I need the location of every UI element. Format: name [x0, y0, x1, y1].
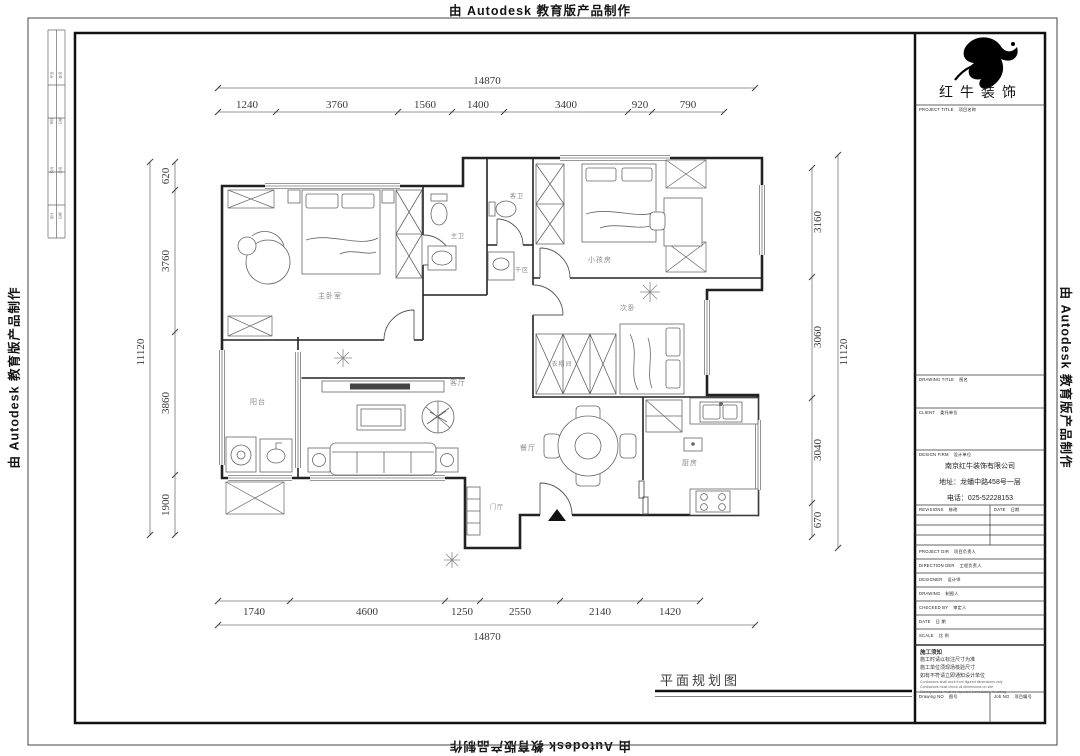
field-label-cn: 项目名称 [959, 107, 977, 112]
field-label-cn: 日 期 [936, 619, 946, 624]
room-guest-bath [489, 201, 516, 217]
field-project-dir: PROJECT DIR项目负责人 [919, 549, 976, 555]
sign-strip-label: 姓名 [58, 72, 63, 79]
door-master [384, 310, 414, 340]
door-entry [540, 483, 572, 515]
toilet [431, 203, 447, 225]
sign-strip-label: 专业 [49, 71, 54, 78]
field-label-en: DRAWING [919, 591, 940, 596]
field-drawing-title: DRAWING TITLE图名 [919, 377, 968, 383]
dim-top-seg: 3760 [326, 99, 349, 111]
dim-right-total: 11120 [838, 338, 850, 365]
sign-strip-label: 签名 [58, 167, 63, 174]
ceiling-light [640, 282, 660, 302]
field-job-no: Job NO项目编号 [994, 694, 1032, 700]
wardrobe [536, 334, 616, 394]
dim-left-seg: 620 [160, 167, 172, 184]
room-label-kids: 小孩房 [588, 255, 612, 264]
room-label-dry-area: 干区 [515, 267, 529, 274]
area-dry-vanity [488, 252, 514, 280]
dim-bottom-seg: 1250 [451, 606, 474, 618]
field-drawing-by: DRAWING制图人 [919, 591, 959, 597]
dim-bottom-total: 14870 [473, 631, 501, 643]
field-label-en: DRAWING TITLE [919, 377, 954, 382]
field-label-en: REVISIONS [919, 507, 944, 512]
field-label-cn: 图名 [959, 377, 968, 382]
tv [350, 384, 410, 390]
note-line: 如有不符请立即通知设计单位 [920, 672, 985, 679]
field-label-en: SCALE [919, 633, 934, 638]
sign-strip-label: 校对 [49, 166, 54, 173]
toilet-tank [431, 194, 447, 201]
toilet [496, 201, 516, 217]
dim-left-seg: 3760 [160, 250, 172, 273]
dim-right-seg: 3040 [812, 439, 824, 462]
field-label-cn: 审定人 [953, 605, 966, 610]
firm-name: 南京红牛装饰有限公司 [917, 461, 1043, 471]
field-label-cn: 项目编号 [1014, 694, 1032, 699]
room-label-master-bath: 主卫 [451, 232, 465, 240]
dining-chair [544, 434, 560, 458]
sign-strip-label: 审核 [49, 117, 54, 124]
sign-strip-label: 设计 [49, 212, 54, 219]
logo-text: 红牛装饰 [919, 82, 1043, 102]
floor-plan-drawing: 专业 姓名 审核 日期 校对 签名 设计 日期 14870 1240 3760 … [0, 0, 1080, 756]
room-living [308, 349, 458, 475]
dimension-text-bottom: 1740 4600 1250 2550 2140 1420 14870 [243, 606, 682, 643]
wash-basin [493, 258, 509, 270]
field-label-cn: 比 例 [939, 633, 949, 638]
field-revisions: REVISIONS修改 [919, 507, 957, 513]
room-foyer [444, 487, 480, 568]
desk [664, 198, 702, 246]
room-kitchen [646, 398, 758, 515]
room-master-bath [428, 194, 456, 270]
field-label-en: Drawing NO [919, 694, 944, 699]
field-date-col: DATE日期 [994, 507, 1019, 513]
field-label-cn: 项目负责人 [954, 549, 976, 554]
field-label-cn: 委托单位 [940, 410, 958, 415]
field-date-row: DATE日 期 [919, 619, 946, 625]
notes-title: 施工须知 [920, 648, 942, 656]
note-line: 施工单位须现场核验尺寸 [920, 664, 975, 671]
dim-right-seg: 3160 [812, 211, 824, 234]
field-label-en: DATE [994, 507, 1006, 512]
dim-top-seg: 3400 [555, 99, 578, 111]
dim-bottom-seg: 1420 [659, 606, 682, 618]
dimension-text-right: 3160 3060 3040 670 11120 [812, 211, 850, 529]
dim-left-total: 11120 [135, 338, 147, 365]
field-label-en: PROJECT DIR [919, 549, 949, 554]
dimension-text-top: 14870 1240 3760 1560 1400 3400 920 790 [236, 75, 697, 111]
field-designer: DESIGNER设计师 [919, 577, 961, 583]
field-design-firm: DESIGN FIRM设计单位 [919, 452, 971, 458]
door-guest-bath [497, 219, 523, 245]
nightstand [288, 190, 300, 203]
dining-chair [620, 434, 636, 458]
room-label-closet: 衣帽间 [551, 360, 572, 368]
dimension-lines [147, 85, 841, 628]
sign-strip [48, 30, 65, 238]
field-client: CLIENT委托单位 [919, 410, 958, 416]
field-label-cn: 图号 [949, 694, 958, 699]
room-label-balcony: 阳台 [250, 397, 266, 406]
nightstand [382, 190, 394, 203]
sign-strip-label: 日期 [58, 117, 63, 124]
outdoor-light [444, 552, 460, 568]
dim-left-seg: 1900 [160, 494, 172, 517]
field-label-en: DIRECTION DER [919, 563, 955, 568]
room-label-foyer: 门厅 [490, 503, 504, 511]
cad-sheet: 由 Autodesk 教育版产品制作 由 Autodesk 教育版产品制作 由 … [0, 0, 1080, 756]
field-drawing-no: Drawing NO图号 [919, 694, 958, 700]
field-label-cn: 修改 [949, 507, 958, 512]
dim-bottom-seg: 2140 [589, 606, 612, 618]
field-label-en: CLIENT [919, 410, 935, 415]
room-label-kitchen: 厨房 [682, 458, 698, 467]
note-line-en: Contractors shall work from figured dime… [920, 680, 1003, 684]
dim-right-seg: 3060 [812, 326, 824, 349]
field-label-cn: 设计单位 [954, 452, 972, 457]
field-scale: SCALE比 例 [919, 633, 949, 639]
drawing-tab: 平面规划图 [655, 673, 912, 697]
dim-top-total: 14870 [473, 75, 501, 87]
field-label-cn: 制图人 [945, 591, 958, 596]
room-label-master-bedroom: 主卧室 [318, 291, 342, 300]
note-line-en: Contractors must check all dimensions on… [920, 685, 993, 689]
room-dining [544, 406, 636, 486]
wash-basin [432, 251, 452, 265]
sign-strip-label: 日期 [58, 212, 63, 219]
dim-bottom-seg: 4600 [356, 606, 379, 618]
note-line: 施工时请以标注尺寸为准 [920, 656, 975, 663]
field-label-cn: 日期 [1011, 507, 1020, 512]
dim-bottom-seg: 2550 [509, 606, 532, 618]
dim-top-seg: 790 [680, 99, 697, 111]
dim-top-seg: 1400 [467, 99, 490, 111]
dimension-text-left: 11120 620 3760 3860 1900 [135, 167, 172, 516]
dim-left-seg: 3860 [160, 392, 172, 415]
room-label-guest-bath: 客卫 [510, 192, 524, 200]
field-label-en: DESIGN FIRM [919, 452, 949, 457]
ceiling-light [334, 349, 352, 367]
toilet-tank [489, 202, 495, 216]
chair [650, 212, 665, 230]
field-label-en: Job NO [994, 694, 1009, 699]
room-label-second-bedroom: 次卧 [620, 303, 636, 312]
dim-top-seg: 1240 [236, 99, 259, 111]
field-label-en: DATE [919, 619, 931, 624]
field-project-title: PROJECT TITLE项目名称 [919, 107, 976, 113]
field-checked-by: CHECKED BY审定人 [919, 605, 966, 611]
dim-bottom-seg: 1740 [243, 606, 266, 618]
dimension-ticks [147, 85, 841, 628]
sofa [330, 443, 436, 475]
field-direction: DIRECTION DER工程负责人 [919, 563, 982, 569]
dim-right-seg: 670 [812, 511, 824, 528]
field-label-en: PROJECT TITLE [919, 107, 954, 112]
field-label-cn: 设计师 [947, 577, 960, 582]
room-label-dining: 餐厅 [520, 443, 536, 452]
room-balcony [226, 437, 292, 472]
firm-phone: 电话：025-52228153 [917, 493, 1043, 503]
field-label-en: CHECKED BY [919, 605, 948, 610]
field-label-cn: 工程负责人 [960, 563, 982, 568]
drawing-tab-label: 平面规划图 [660, 673, 740, 688]
door-second-bedroom [533, 285, 563, 315]
door-kids-room [540, 248, 570, 278]
field-label-en: DESIGNER [919, 577, 942, 582]
firm-address: 地址：龙蟠中路458号一层 [917, 477, 1043, 487]
dim-top-seg: 920 [632, 99, 649, 111]
room-label-living: 客厅 [450, 378, 466, 387]
dim-top-seg: 1560 [414, 99, 437, 111]
